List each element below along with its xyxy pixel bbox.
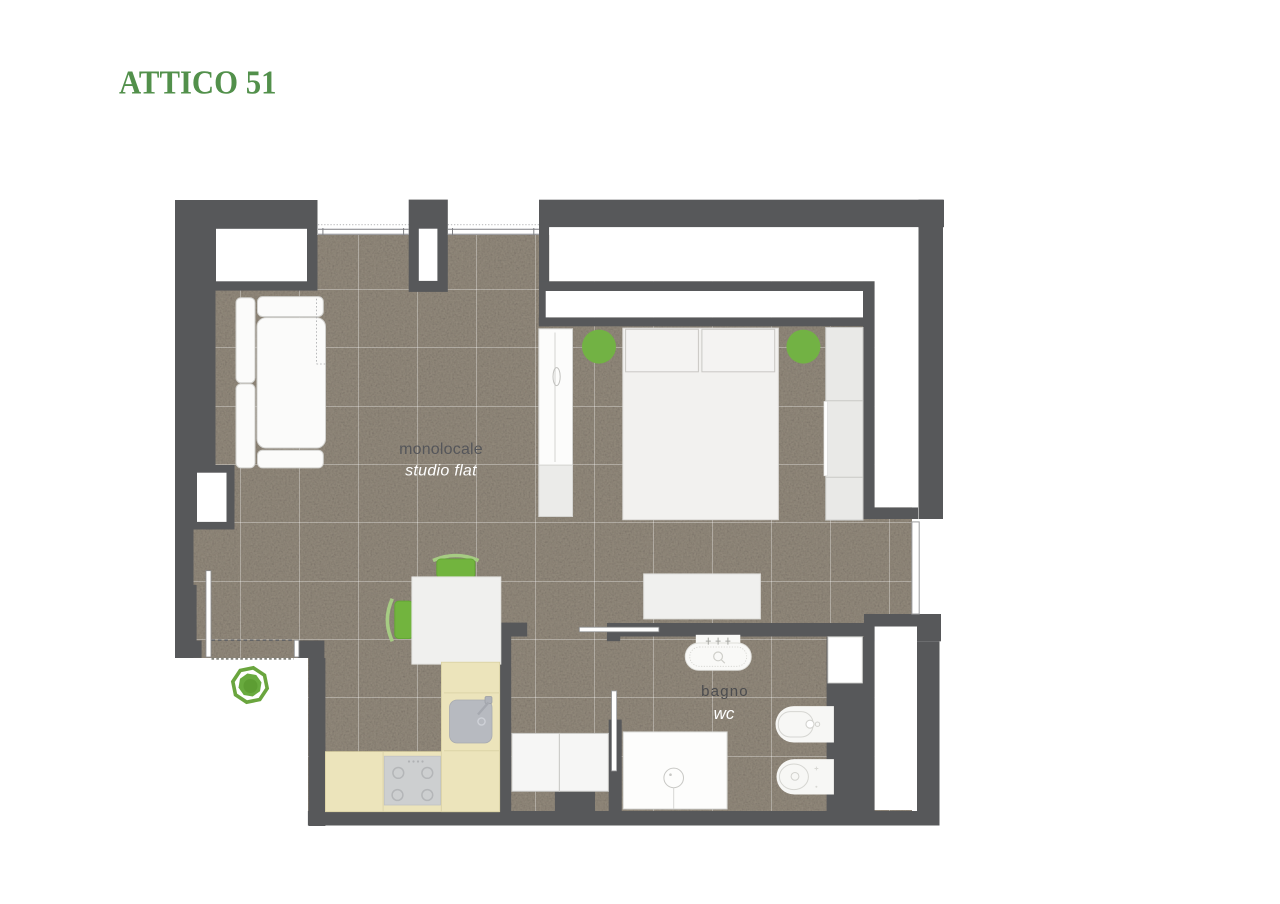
svg-text:studio flat: studio flat	[405, 463, 477, 480]
svg-text:monolocale: monolocale	[399, 441, 483, 458]
svg-text:bagno: bagno	[701, 683, 749, 700]
svg-text:wc: wc	[714, 704, 735, 723]
svg-text:ATTICO 51: ATTICO 51	[119, 65, 277, 102]
